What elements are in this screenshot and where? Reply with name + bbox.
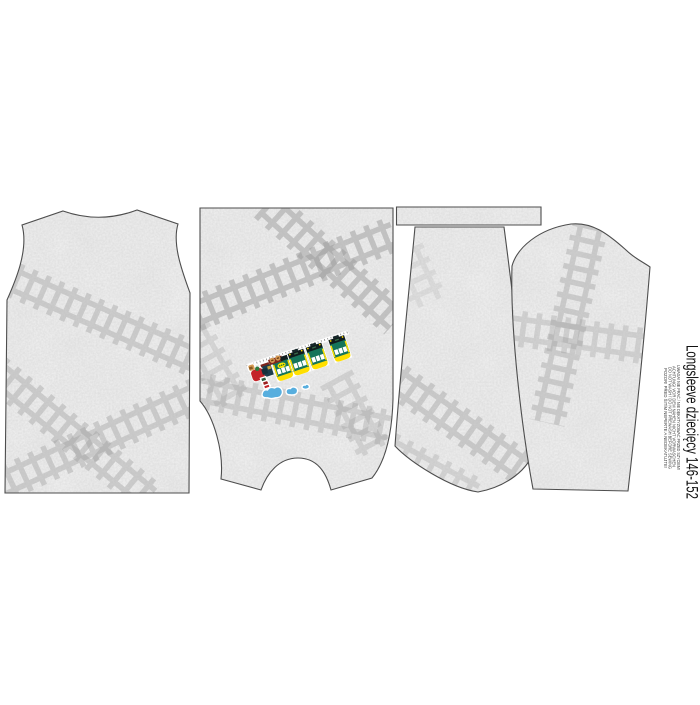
svg-text:Longsleeve dziecięcy 146-152: Longsleeve dziecięcy 146-152 [683,345,700,499]
svg-text:ACHTUNG! VOR DEM NÄHEN NICHT V: ACHTUNG! VOR DEM NÄHEN NICHT VORWASCHEN [672,366,677,467]
svg-text:UWAGA! NIE PRAĆ / NIE DEKATYZO: UWAGA! NIE PRAĆ / NIE DEKATYZOWAĆ PRZED … [676,365,681,470]
svg-text:POZOR! PŘED ŠITÍM NEPERTE A NE: POZOR! PŘED ŠITÍM NEPERTE A NEDEKATUJTE! [663,368,668,468]
svg-text:DO NOT WASH / DO NOT PREWASH B: DO NOT WASH / DO NOT PREWASH BEFORE SEWI… [667,367,672,469]
